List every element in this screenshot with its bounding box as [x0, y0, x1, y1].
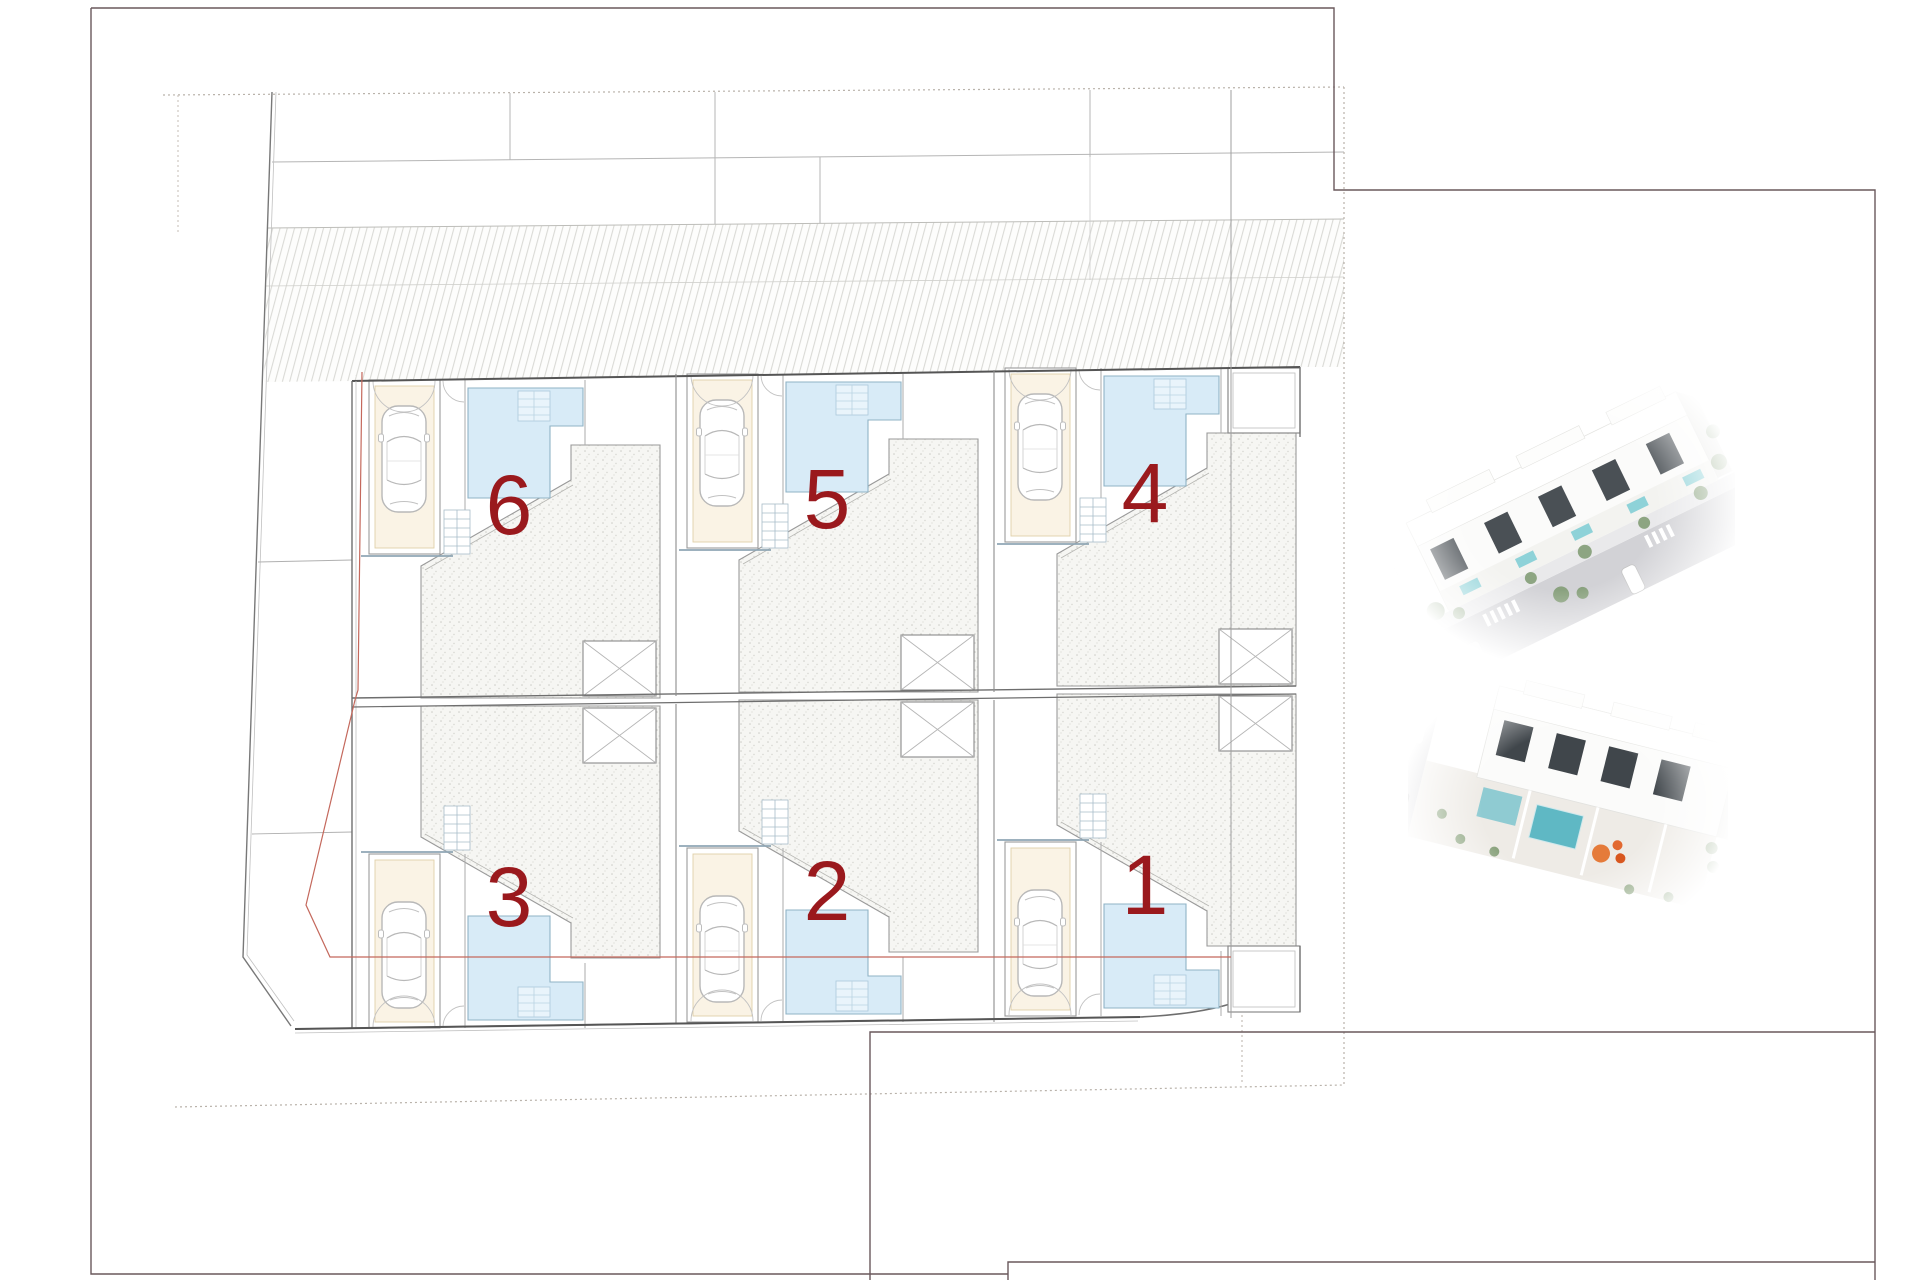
unit-6-label: 6: [486, 463, 533, 547]
drawing-sheet: 6 5 4 3 2 1: [0, 0, 1920, 1280]
unit-2-label: 2: [804, 849, 851, 933]
unit-5-label: 5: [804, 457, 851, 541]
exterior-render-aerial-bottom: [1408, 672, 1728, 937]
unit-1-label: 1: [1122, 843, 1169, 927]
sidewalk-hatch: [264, 219, 1344, 382]
render-top-illustration: [1390, 355, 1735, 660]
unit-3-label: 3: [486, 855, 533, 939]
unit-4-label: 4: [1122, 451, 1169, 535]
exterior-render-aerial-top: [1390, 355, 1735, 660]
render-bottom-illustration: [1408, 672, 1728, 937]
